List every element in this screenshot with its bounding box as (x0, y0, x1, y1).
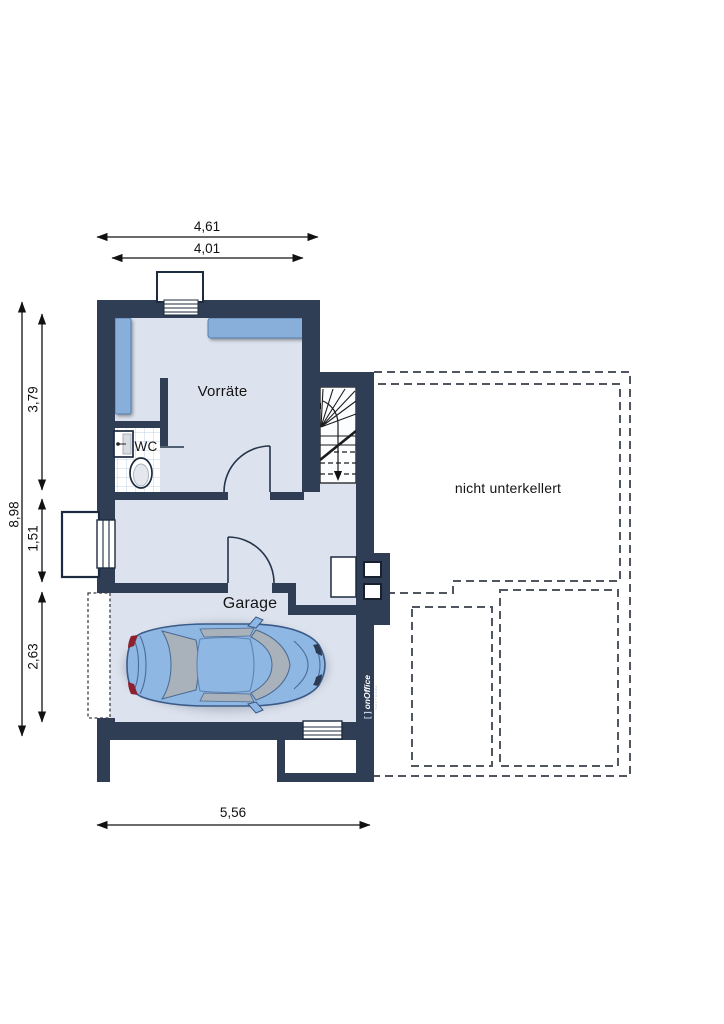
not-basemented-outline (374, 372, 630, 776)
room-label-wc: WC (129, 439, 163, 454)
onoffice-watermark: [ ] onOffice SOFTWARE (358, 659, 376, 735)
floor-plan-page: 4,61 4,01 8,98 3,79 1,51 2,63 5,56 Vorrä… (0, 0, 724, 1024)
annotation-not-basemented: nicht unterkellert (418, 480, 598, 496)
room-label-storage: Vorräte (170, 383, 275, 400)
floor-plan-drawing (0, 0, 724, 1024)
hall-niche (331, 557, 356, 597)
dim-left-middle: 1,51 (26, 509, 41, 569)
dim-left-lower: 2,63 (26, 627, 41, 687)
car (124, 617, 328, 713)
room-label-garage: Garage (198, 595, 302, 613)
staircase (315, 387, 356, 483)
dim-top-outer: 4,61 (167, 219, 247, 234)
hall-window (97, 520, 115, 568)
dim-left-upper: 3,79 (26, 370, 41, 430)
dim-top-inner: 4,01 (167, 241, 247, 256)
garage-door (88, 593, 110, 718)
onoffice-bracket-icon: [ ] (363, 711, 372, 719)
onoffice-tagline: SOFTWARE (375, 675, 378, 709)
dim-bottom: 5,56 (193, 805, 273, 820)
chimney-top (157, 272, 203, 315)
light-well (62, 512, 99, 577)
onoffice-wordmark: onOffice (362, 675, 372, 709)
dim-left-total: 8,98 (7, 485, 22, 545)
chimney-bottom (303, 721, 342, 739)
